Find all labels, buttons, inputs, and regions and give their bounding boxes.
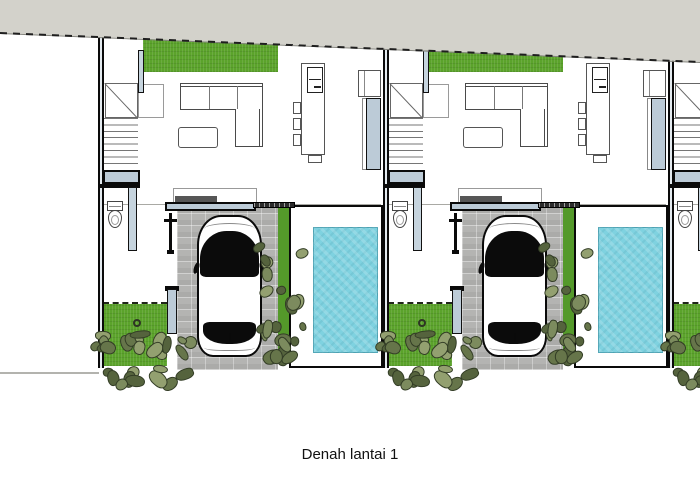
service-yard-dashed-edge xyxy=(388,302,452,304)
bush-blob xyxy=(391,369,407,388)
gate-post-crossbar xyxy=(164,219,177,222)
bush-blob xyxy=(146,366,171,390)
coffee-table xyxy=(463,127,503,148)
toilet-bowl xyxy=(678,210,692,228)
party-wall xyxy=(383,36,389,368)
plan-caption: Denah lantai 1 xyxy=(0,446,700,463)
sofa xyxy=(465,83,548,110)
side-window-glass xyxy=(651,98,666,170)
car-windshield xyxy=(200,231,259,277)
drain-circle xyxy=(133,319,141,327)
bathroom-door xyxy=(413,187,422,251)
swimming-pool xyxy=(598,227,663,353)
toilet-bowl xyxy=(108,210,122,228)
bush-blob xyxy=(445,374,465,394)
lot-boundary-line xyxy=(0,372,99,374)
car-trunk-line xyxy=(489,343,540,351)
bar-stool xyxy=(578,118,586,130)
service-yard-dashed-edge xyxy=(103,302,167,304)
carport-plate-hatched xyxy=(253,202,295,208)
car-antenna xyxy=(229,333,231,342)
entry-door-leaf xyxy=(138,50,144,93)
bar-stool xyxy=(293,102,301,114)
car-top-view xyxy=(482,215,547,357)
bush-blob xyxy=(676,369,692,388)
gate-post-foot xyxy=(452,250,459,254)
bush-blob xyxy=(124,374,145,388)
yard-gate xyxy=(452,289,462,334)
bush-blob xyxy=(694,374,700,388)
stair-threshold-plate xyxy=(673,170,700,184)
bathroom-wall xyxy=(668,184,700,188)
bar-stool xyxy=(293,118,301,130)
stair-steps xyxy=(104,118,138,169)
car-trunk-line xyxy=(204,343,255,351)
sofa-chaise xyxy=(520,109,548,147)
party-wall xyxy=(98,36,104,368)
bush-blob xyxy=(388,367,400,377)
units-layer xyxy=(0,0,700,500)
bush-blob xyxy=(409,374,430,388)
bush-blob xyxy=(398,377,415,393)
swimming-pool xyxy=(313,227,378,353)
yard-gate xyxy=(167,289,177,334)
bar-stool xyxy=(578,134,586,146)
coffee-table xyxy=(178,127,218,148)
stair-steps xyxy=(674,118,700,169)
bush-blob xyxy=(116,378,129,391)
bush-blob xyxy=(673,367,685,377)
house-unit-1 xyxy=(98,0,383,500)
bush-blob xyxy=(106,369,122,388)
bush-blob xyxy=(113,377,130,393)
stair-threshold-plate xyxy=(103,170,140,184)
gate-post-foot xyxy=(167,250,174,254)
bush-blob xyxy=(410,364,427,381)
service-yard-grass xyxy=(388,304,452,366)
planting-strip xyxy=(278,206,289,363)
carport-plate-hatched xyxy=(538,202,580,208)
carport-plate xyxy=(450,202,541,211)
bush-blob xyxy=(401,378,414,391)
car-windshield xyxy=(485,231,544,277)
side-window-glass xyxy=(366,98,381,170)
bush-blob xyxy=(125,364,142,381)
bush-blob xyxy=(103,367,115,377)
car-antenna xyxy=(514,333,516,342)
car-top-view xyxy=(197,215,262,357)
bush-blob xyxy=(683,377,700,393)
service-yard-grass xyxy=(673,304,700,366)
bush-blob xyxy=(160,374,180,394)
service-yard-grass xyxy=(103,304,167,366)
island-end-tab xyxy=(593,155,607,163)
house-unit-2 xyxy=(383,0,668,500)
bush-blob xyxy=(695,364,700,381)
entry-door-leaf xyxy=(423,50,429,93)
carport-plate xyxy=(165,202,256,211)
cooktop-sink-unit xyxy=(592,67,608,93)
floor-plan-canvas: Denah lantai 1 xyxy=(0,0,700,500)
service-yard-dashed-edge xyxy=(673,302,700,304)
party-wall xyxy=(668,36,674,368)
island-end-tab xyxy=(308,155,322,163)
gate-post-crossbar xyxy=(449,219,462,222)
bush-blob xyxy=(686,378,699,391)
cooktop-sink-unit xyxy=(307,67,323,93)
stair-steps xyxy=(389,118,423,169)
sofa xyxy=(180,83,263,110)
bush-blob xyxy=(407,370,423,389)
house-unit-3 xyxy=(668,0,700,500)
bush-blob xyxy=(692,370,700,389)
refrigerator-cabinet xyxy=(358,70,381,97)
sofa-chaise xyxy=(235,109,263,147)
refrigerator-cabinet xyxy=(643,70,666,97)
planting-strip xyxy=(563,206,574,363)
toilet-bowl xyxy=(393,210,407,228)
bush-blob xyxy=(122,370,138,389)
bar-stool xyxy=(293,134,301,146)
bathroom-door xyxy=(128,187,137,251)
stair-threshold-plate xyxy=(388,170,425,184)
drain-circle xyxy=(418,319,426,327)
bar-stool xyxy=(578,102,586,114)
bush-blob xyxy=(431,366,456,390)
